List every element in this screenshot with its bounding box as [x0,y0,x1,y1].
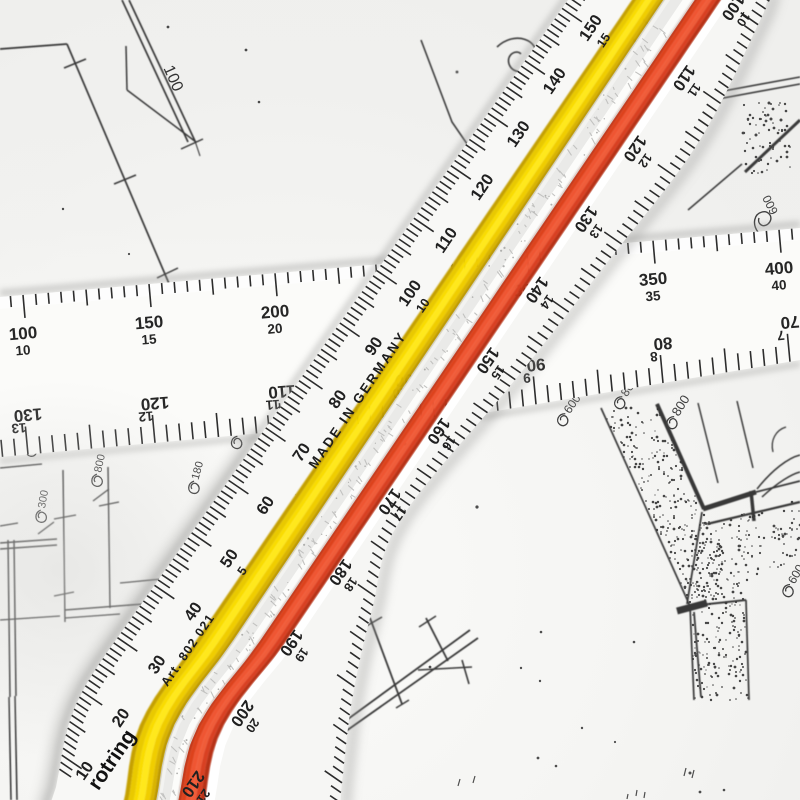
svg-text:350: 350 [638,269,668,290]
svg-text:35: 35 [645,288,662,304]
svg-text:20: 20 [267,321,283,337]
svg-text:15: 15 [141,331,158,347]
svg-text:7: 7 [777,328,786,344]
svg-text:10: 10 [15,342,31,358]
svg-text:400: 400 [764,258,794,279]
svg-text:150: 150 [134,312,164,333]
svg-text:40: 40 [771,277,787,293]
svg-text:100: 100 [8,323,38,344]
svg-text:200: 200 [260,301,290,322]
